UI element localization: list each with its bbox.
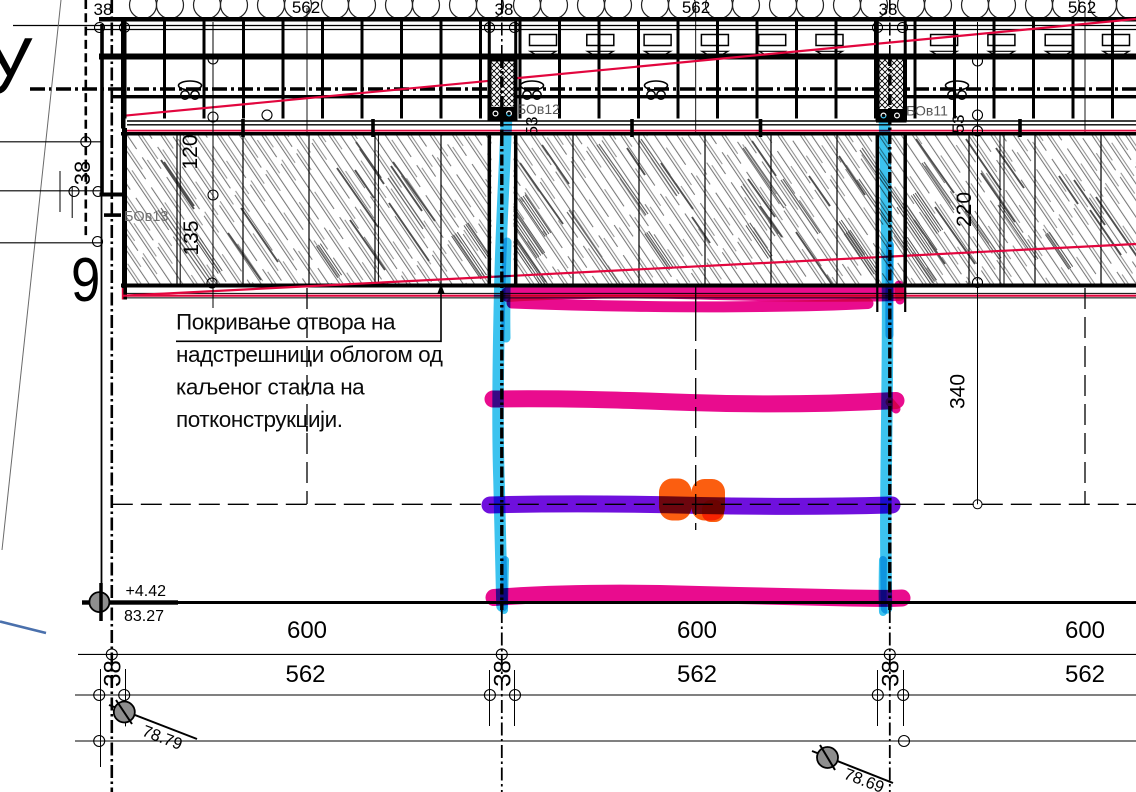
svg-text:БОв12: БОв12 bbox=[517, 101, 560, 117]
svg-text:каљеног стакла на: каљеног стакла на bbox=[176, 375, 365, 400]
svg-text:562: 562 bbox=[292, 0, 320, 17]
svg-text:38: 38 bbox=[94, 0, 113, 19]
svg-text:340: 340 bbox=[947, 374, 970, 409]
svg-text:53: 53 bbox=[949, 115, 968, 134]
svg-text:562: 562 bbox=[285, 661, 325, 688]
svg-text:38: 38 bbox=[100, 660, 127, 687]
svg-text:220: 220 bbox=[953, 192, 976, 227]
svg-text:Покривање отвора на: Покривање отвора на bbox=[176, 310, 396, 335]
svg-text:38: 38 bbox=[490, 660, 517, 687]
svg-text:53: 53 bbox=[523, 117, 542, 136]
svg-text:38: 38 bbox=[70, 161, 95, 185]
svg-text:потконструкцији.: потконструкцији. bbox=[176, 407, 343, 432]
svg-text:БОв13: БОв13 bbox=[124, 209, 168, 225]
svg-text:БОв11: БОв11 bbox=[906, 103, 948, 119]
svg-text:9: 9 bbox=[71, 246, 100, 315]
svg-text:562: 562 bbox=[1068, 0, 1096, 17]
svg-text:38: 38 bbox=[878, 660, 905, 687]
svg-text:83.27: 83.27 bbox=[124, 608, 164, 625]
svg-text:562: 562 bbox=[677, 661, 717, 688]
svg-text:600: 600 bbox=[1065, 617, 1105, 644]
svg-text:надстрешници облогом од: надстрешници облогом од bbox=[176, 342, 443, 367]
svg-text:600: 600 bbox=[677, 617, 717, 644]
svg-text:600: 600 bbox=[287, 617, 327, 644]
svg-text:135: 135 bbox=[180, 220, 203, 255]
svg-text:562: 562 bbox=[1065, 661, 1105, 688]
svg-text:38: 38 bbox=[879, 0, 898, 19]
svg-text:+4.42: +4.42 bbox=[126, 583, 167, 600]
svg-text:38: 38 bbox=[495, 0, 514, 19]
svg-text:У: У bbox=[0, 20, 33, 110]
svg-text:120: 120 bbox=[179, 134, 202, 169]
